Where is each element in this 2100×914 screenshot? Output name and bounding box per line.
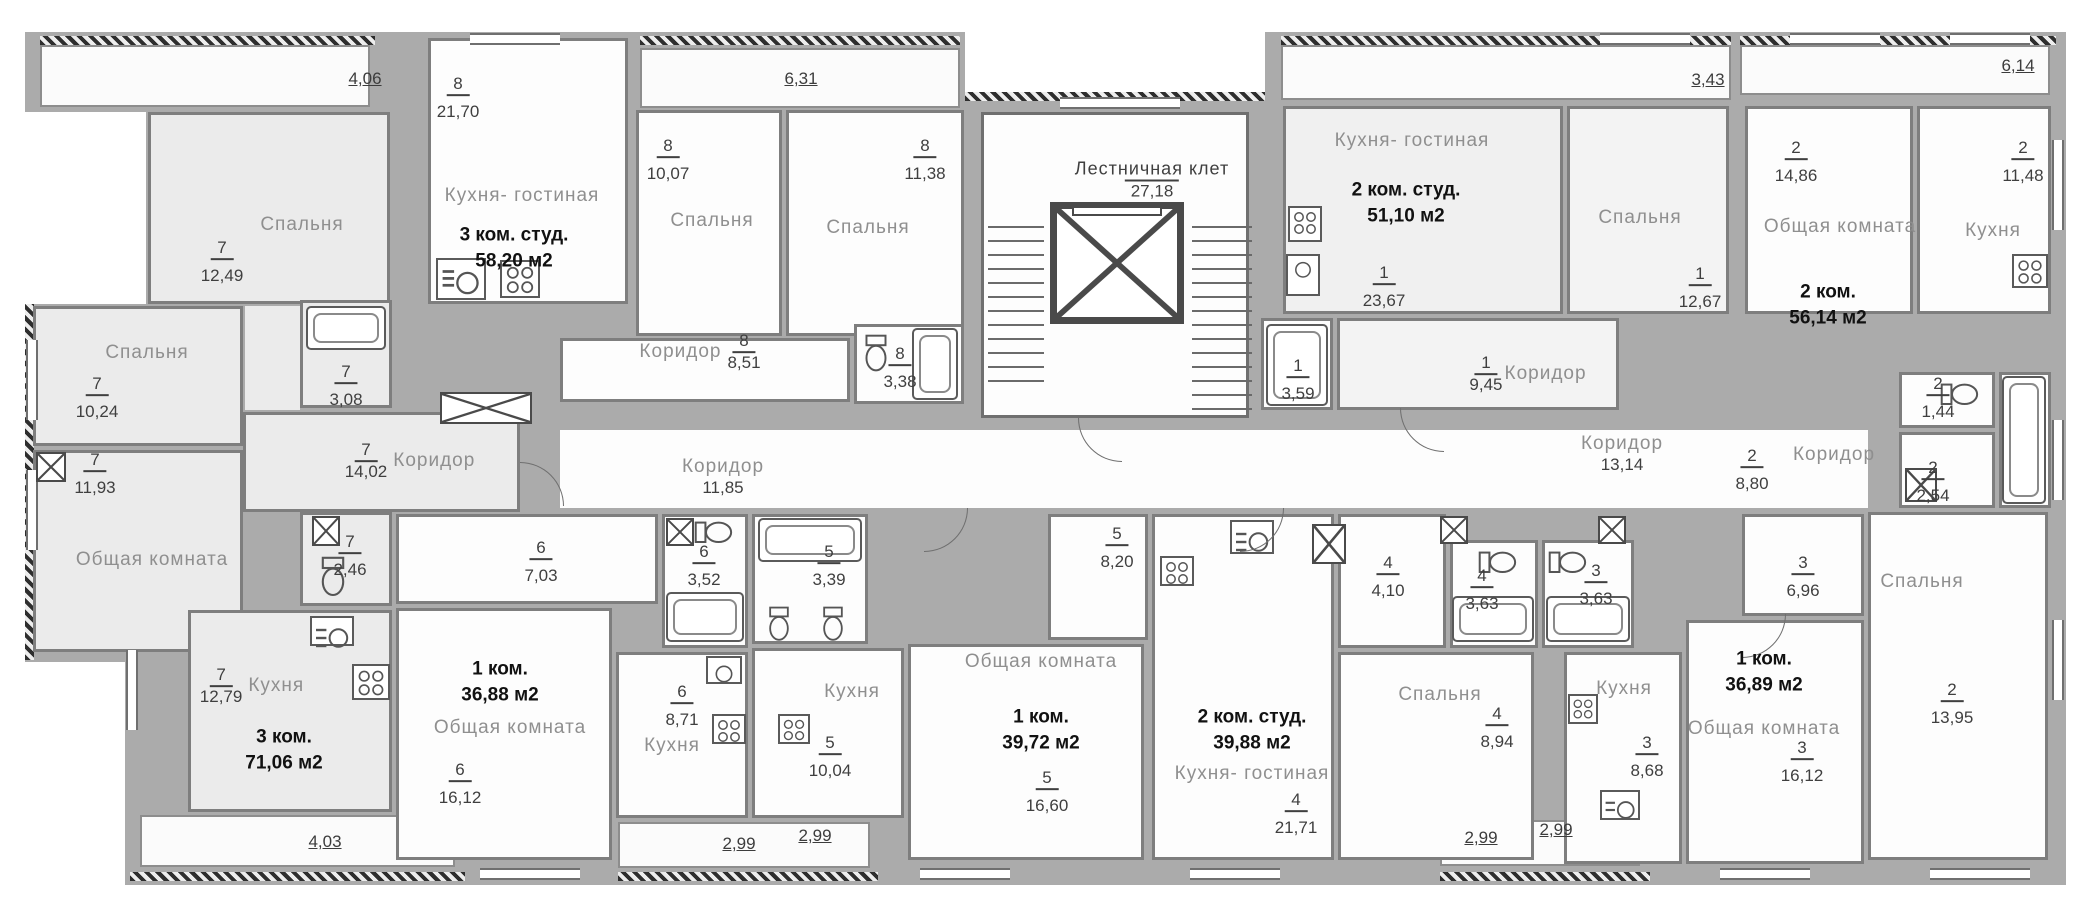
bathtub-icon xyxy=(2002,376,2046,504)
apt7-wc-area: 72,46 xyxy=(333,533,366,579)
elevator xyxy=(1050,202,1184,324)
room-area: 4,10 xyxy=(1371,581,1404,600)
room-area: 16,12 xyxy=(1781,766,1824,785)
room-area: 13,95 xyxy=(1931,708,1974,727)
apt6-common-label: Общая комната xyxy=(434,717,586,739)
apt-type: 3 ком. студ. xyxy=(460,222,569,248)
apt5-hall-area: 58,20 xyxy=(1100,525,1133,571)
stairwell-area: 27,18 xyxy=(1125,180,1180,202)
stove-icon xyxy=(712,714,746,744)
apt4-bedroom-area: 48,94 xyxy=(1480,705,1513,751)
sink-icon xyxy=(310,616,354,646)
apt6-kitchen-label: Кухня xyxy=(644,735,700,757)
window xyxy=(2052,140,2064,230)
corridor-area: 13,14 xyxy=(1601,455,1644,475)
apt-number: 2 xyxy=(1784,139,1807,160)
apt3-kitchen-label: Кухня xyxy=(1596,678,1652,700)
apt-number: 2 xyxy=(1940,681,1963,702)
shared-corridor1-label: Коридор 11,85 xyxy=(682,456,764,498)
vent-shaft-icon xyxy=(440,392,532,424)
apt-type: 1 ком. xyxy=(472,656,528,682)
room-area: 16,12 xyxy=(439,788,482,807)
window xyxy=(1600,33,1690,45)
apt-total-area: 36,89 м2 xyxy=(1725,672,1802,698)
apt-type: 2 ком. студ. xyxy=(1352,177,1461,203)
apt-type: 1 ком. xyxy=(1013,704,1069,730)
room-area: 3,63 xyxy=(1579,589,1612,608)
toilet-icon xyxy=(820,606,846,642)
room-area: 3,08 xyxy=(329,390,362,409)
apt-number: 8 xyxy=(656,137,679,158)
room-area: 11,93 xyxy=(74,478,115,497)
apt1-bath-area: 13,59 xyxy=(1281,357,1314,403)
apt5-kitchen-area: 510,04 xyxy=(809,734,852,780)
dim-top-1: 4,06 xyxy=(348,69,381,89)
hatch-top-left xyxy=(40,36,375,45)
apt8-title: 3 ком. студ.58,20 м2 xyxy=(460,222,569,273)
apt8-bed2-label: Спальня xyxy=(826,217,909,239)
corridor-name: Коридор xyxy=(1505,363,1587,385)
apt7-entry-area xyxy=(245,306,300,410)
stairwell-label: Лестничная клет 27,18 xyxy=(1075,159,1229,202)
apt-number: 4 xyxy=(1485,705,1508,726)
dim-top-4: 6,14 xyxy=(2001,56,2034,76)
apt3-hall-area: 36,96 xyxy=(1786,554,1819,600)
apt-number: 7 xyxy=(209,666,232,687)
room-area: 12,49 xyxy=(201,266,244,285)
building-notch xyxy=(25,112,146,304)
stove-icon xyxy=(1288,206,1322,242)
elevator-door xyxy=(1072,206,1162,216)
toilet-icon xyxy=(694,518,734,544)
stove-icon xyxy=(778,714,810,744)
apt6-title: 1 ком.36,88 м2 xyxy=(461,656,538,707)
apt3-kitchen-area: 38,68 xyxy=(1630,734,1663,780)
apt6-kitchen-area: 68,71 xyxy=(665,683,698,729)
apt-number: 4 xyxy=(1284,791,1307,812)
apt2-bedroom-area: 213,95 xyxy=(1931,681,1974,727)
hatch-bottom-left xyxy=(130,872,465,881)
apt6-hall-area: 67,03 xyxy=(524,539,557,585)
vent-shaft-icon xyxy=(36,452,66,482)
bathtub-icon xyxy=(758,518,862,562)
apt8-corridor-area: 88,51 xyxy=(727,332,760,372)
hatch-bottom-mid xyxy=(618,872,878,881)
dim-bottom-1: 4,03 xyxy=(308,832,341,852)
room-area: 8,80 xyxy=(1735,474,1768,493)
stairs-left-flight xyxy=(988,226,1044,392)
room-area: 10,07 xyxy=(647,164,690,183)
apt7-bedroom-left-label: Спальня xyxy=(105,342,188,364)
sink-icon xyxy=(1286,254,1320,296)
bathtub-icon xyxy=(306,306,386,350)
corridor-area: 11,85 xyxy=(702,478,743,498)
apt7-kitchen-area: 712,79 xyxy=(200,666,243,706)
apt7-bedroom-top-label: Спальня xyxy=(260,214,343,236)
dim-bottom-2: 2,99 xyxy=(722,834,755,854)
sink-icon xyxy=(706,656,742,684)
dim-top-3: 3,43 xyxy=(1691,70,1724,90)
apt-number: 3 xyxy=(1791,554,1814,575)
room-area: 2,46 xyxy=(333,560,366,579)
stairs-right-flight xyxy=(1192,226,1252,416)
apt3-bath-area: 33,63 xyxy=(1579,562,1612,608)
apt-type: 2 ком. студ. xyxy=(1198,704,1307,730)
room-area: 21,70 xyxy=(437,102,480,121)
room-area: 8,20 xyxy=(1100,552,1133,571)
window xyxy=(2052,620,2064,700)
apt-number: 7 xyxy=(354,441,377,462)
room-area: 14,86 xyxy=(1775,166,1818,185)
apt-number: 3 xyxy=(1790,739,1813,760)
room-area: 3,52 xyxy=(687,570,720,589)
room-area: 3,39 xyxy=(812,570,845,589)
apt6-bath-area: 63,52 xyxy=(687,543,720,589)
apt-number: 3 xyxy=(1584,562,1607,583)
apt-number: 1 xyxy=(1474,354,1497,375)
apt-number: 2 xyxy=(2011,139,2034,160)
dim-top-2: 6,31 xyxy=(784,69,817,89)
room-area: 12,67 xyxy=(1679,292,1722,311)
apt7-kitchen xyxy=(188,610,392,812)
room-area: 8,68 xyxy=(1630,761,1663,780)
apt3-title: 1 ком.36,89 м2 xyxy=(1725,646,1802,697)
kitchen-name: Кухня xyxy=(248,675,304,697)
window xyxy=(1060,97,1180,109)
apt-number: 6 xyxy=(448,761,471,782)
vent-shaft-icon xyxy=(666,518,694,546)
dim-bottom-5: 2,99 xyxy=(1539,820,1572,840)
apt-number: 6 xyxy=(670,683,693,704)
apt4-bath-area: 43,63 xyxy=(1465,567,1498,613)
apt-type: 1 ком. xyxy=(1736,646,1792,672)
room-area: 3,38 xyxy=(883,372,916,391)
room-area: 23,67 xyxy=(1363,291,1406,310)
apt5-common-label: Общая комната xyxy=(965,651,1117,673)
apt-number: 8 xyxy=(913,137,936,158)
apt-number: 7 xyxy=(338,533,361,554)
apt-number: 5 xyxy=(817,543,840,564)
window xyxy=(1950,33,2030,45)
apt1-kl-label: Кухня- гостиная xyxy=(1335,130,1490,152)
apt-number: 7 xyxy=(334,363,357,384)
window xyxy=(2052,420,2064,500)
apt4-title: 2 ком. студ.39,88 м2 xyxy=(1198,704,1307,755)
apt5-bath-area: 53,39 xyxy=(812,543,845,589)
apt8-bed2-area: 811,38 xyxy=(904,137,945,183)
apt1-kl-area: 123,67 xyxy=(1363,264,1406,310)
window xyxy=(1790,33,1880,45)
dim-bottom-3: 2,99 xyxy=(798,826,831,846)
apt7-bedroom-left xyxy=(33,306,243,446)
vent-shaft-icon xyxy=(1440,516,1468,544)
apt5-common-area: 516,60 xyxy=(1026,769,1069,815)
apt7-bedroom-left-area: 710,24 xyxy=(76,375,119,421)
shared-corridor2-label: Коридор 13,14 xyxy=(1581,433,1663,475)
dim-bottom-4: 2,99 xyxy=(1464,828,1497,848)
apt-total-area: 71,06 м2 xyxy=(245,750,322,776)
apt7-common-label: Общая комната xyxy=(76,549,228,571)
floor-plan: Спальня 712,49 Спальня 710,24 711,93 Общ… xyxy=(0,0,2100,914)
apt7-bedroom-top-area: 712,49 xyxy=(201,239,244,285)
apt-number: 1 xyxy=(1688,265,1711,286)
room-area: 8,71 xyxy=(665,710,698,729)
apt2-corridor-label: Коридор xyxy=(1793,444,1875,466)
apt-number: 1 xyxy=(1286,357,1309,378)
apt-number: 6 xyxy=(692,543,715,564)
apt4-hall-area: 44,10 xyxy=(1371,554,1404,600)
apt-type: 2 ком. xyxy=(1800,279,1856,305)
apt5-title: 1 ком.39,72 м2 xyxy=(1002,704,1079,755)
vent-shaft-icon xyxy=(1598,516,1626,544)
window xyxy=(26,470,38,550)
room-area: 10,24 xyxy=(76,402,119,421)
apt6-common-area: 616,12 xyxy=(439,761,482,807)
room-area: 10,04 xyxy=(809,761,852,780)
apt7-corridor-label: 714,02 Коридор xyxy=(345,441,476,481)
apt8-kl-label: Кухня- гостиная xyxy=(445,185,600,207)
apt2-kitchen-label: Кухня xyxy=(1965,220,2021,242)
room-area: 14,02 xyxy=(345,462,388,481)
corridor-name: Коридор xyxy=(393,450,475,472)
window xyxy=(1190,868,1280,880)
apt-number: 8 xyxy=(732,332,755,353)
apt-number: 5 xyxy=(1035,769,1058,790)
apt7-bath-area: 73,08 xyxy=(329,363,362,409)
apt1-corridor-label: 19,45 Коридор xyxy=(1469,354,1586,394)
window xyxy=(1930,868,2030,880)
room-area: 6,96 xyxy=(1786,581,1819,600)
apt1-corridor-area: 19,45 xyxy=(1469,354,1502,394)
room-area: 1,44 xyxy=(1921,402,1954,421)
corridor-name: Коридор xyxy=(1581,433,1663,455)
corridor-name: Коридор xyxy=(639,341,721,363)
apt-number: 5 xyxy=(818,734,841,755)
apt-number: 7 xyxy=(210,239,233,260)
window xyxy=(26,340,38,420)
apt-number: 4 xyxy=(1376,554,1399,575)
apt7-title: 3 ком.71,06 м2 xyxy=(245,724,322,775)
apt8-bath-area: 83,38 xyxy=(883,345,916,391)
apt4-bedroom-label: Спальня xyxy=(1398,684,1481,706)
apt-number: 8 xyxy=(888,345,911,366)
apt-total-area: 39,88 м2 xyxy=(1213,730,1290,756)
apt-total-area: 39,72 м2 xyxy=(1002,730,1079,756)
apt2-kitchen-area: 211,48 xyxy=(2002,139,2043,185)
room-area: 3,63 xyxy=(1465,594,1498,613)
apt8-bed1-label: Спальня xyxy=(670,210,753,232)
room-area: 12,79 xyxy=(200,687,243,706)
apt-number: 2 xyxy=(1740,447,1763,468)
apt2-corridor-area: 28,80 xyxy=(1735,447,1768,493)
stove-icon xyxy=(1160,556,1194,586)
apt-number: 6 xyxy=(529,539,552,560)
apt-number: 5 xyxy=(1105,525,1128,546)
room-area: 16,60 xyxy=(1026,796,1069,815)
apt-total-area: 58,20 м2 xyxy=(475,248,552,274)
room-area: 11,38 xyxy=(904,164,945,183)
stove-icon xyxy=(1568,694,1598,724)
apt2-wc-area: 22,54 xyxy=(1916,459,1949,505)
apt-number: 2 xyxy=(1921,459,1944,480)
apt7-common-area: 711,93 xyxy=(74,451,115,497)
vent-shaft-icon xyxy=(1312,524,1346,564)
room-area: 3,59 xyxy=(1281,384,1314,403)
bathtub-icon xyxy=(666,592,744,642)
room-area: 11,48 xyxy=(2002,166,2043,185)
apt8-corridor-label: Коридор 88,51 xyxy=(639,332,760,372)
stove-icon xyxy=(352,664,390,700)
apt-number: 8 xyxy=(446,75,469,96)
apt5-kitchen-label: Кухня xyxy=(824,681,880,703)
room-area: 9,45 xyxy=(1469,375,1502,394)
apt7-bedroom-top xyxy=(148,112,390,304)
balcony-top-left xyxy=(40,45,370,107)
apt3-common-area: 316,12 xyxy=(1781,739,1824,785)
hatch-bottom-right xyxy=(1440,872,1650,881)
apt1-title: 2 ком. студ.51,10 м2 xyxy=(1352,177,1461,228)
corridor-name: Коридор xyxy=(682,456,764,478)
apt1-bedroom-area: 112,67 xyxy=(1679,265,1722,311)
balcony-top-apt1 xyxy=(1281,45,1731,100)
apt4-kl-label: Кухня- гостиная xyxy=(1175,763,1330,785)
apt2-bath-area: 21,44 xyxy=(1921,375,1954,421)
apt-number: 7 xyxy=(85,375,108,396)
room-area: 8,94 xyxy=(1480,732,1513,751)
apt-number: 4 xyxy=(1470,567,1493,588)
apt-number: 7 xyxy=(83,451,106,472)
stairwell-name: Лестничная клет xyxy=(1075,159,1229,180)
stove-icon xyxy=(2012,254,2048,288)
apt-total-area: 36,88 м2 xyxy=(461,682,538,708)
apt4-kl-area: 421,71 xyxy=(1275,791,1318,837)
room-area: 21,71 xyxy=(1275,818,1318,837)
apt7-corridor-area: 714,02 xyxy=(345,441,388,481)
apt8-kl-area: 821,70 xyxy=(437,75,480,121)
apt-number: 2 xyxy=(1926,375,1949,396)
apt2-title: 2 ком.56,14 м2 xyxy=(1789,279,1866,330)
window xyxy=(920,868,1010,880)
apt2-common-area: 214,86 xyxy=(1775,139,1818,185)
apt3-common-label: Общая комната xyxy=(1688,718,1840,740)
room-area: 7,03 xyxy=(524,566,557,585)
hatch-top-mid xyxy=(640,36,960,45)
room-area: 2,54 xyxy=(1916,486,1949,505)
apt2-bedroom-label: Спальня xyxy=(1880,571,1963,593)
apt7-kitchen-label: 712,79 Кухня xyxy=(200,666,304,706)
apt8-bed1-area: 810,07 xyxy=(647,137,690,183)
apt1-bedroom-label: Спальня xyxy=(1598,207,1681,229)
window xyxy=(1720,868,1810,880)
sink-icon xyxy=(1600,790,1640,820)
room-area: 8,51 xyxy=(727,353,760,372)
window xyxy=(126,650,138,730)
toilet-icon xyxy=(766,606,792,642)
window xyxy=(480,868,580,880)
apt-type: 3 ком. xyxy=(256,724,312,750)
window xyxy=(470,33,560,45)
bathtub-icon xyxy=(912,328,958,400)
apt-number: 1 xyxy=(1372,264,1395,285)
apt-number: 3 xyxy=(1635,734,1658,755)
apt2-common-label: Общая комната xyxy=(1764,216,1916,238)
apt-total-area: 56,14 м2 xyxy=(1789,305,1866,331)
apt-total-area: 51,10 м2 xyxy=(1367,203,1444,229)
